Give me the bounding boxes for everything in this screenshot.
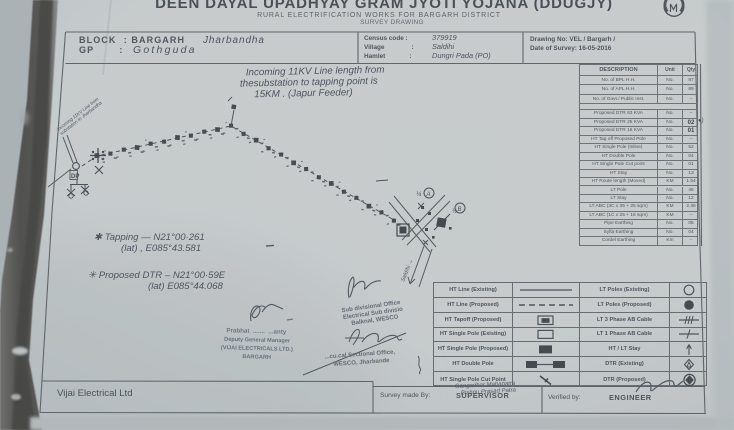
svg-text:BARGARH: BARGARH (242, 354, 271, 361)
svg-text:Deputy General Manager: Deputy General Manager (224, 337, 291, 345)
svg-text:Prabhat ....... ...anty: Prabhat ....... ...anty (226, 327, 287, 336)
svg-text:(VIJAI ELECTRICALS LTD.): (VIJAI ELECTRICALS LTD.) (221, 345, 293, 353)
